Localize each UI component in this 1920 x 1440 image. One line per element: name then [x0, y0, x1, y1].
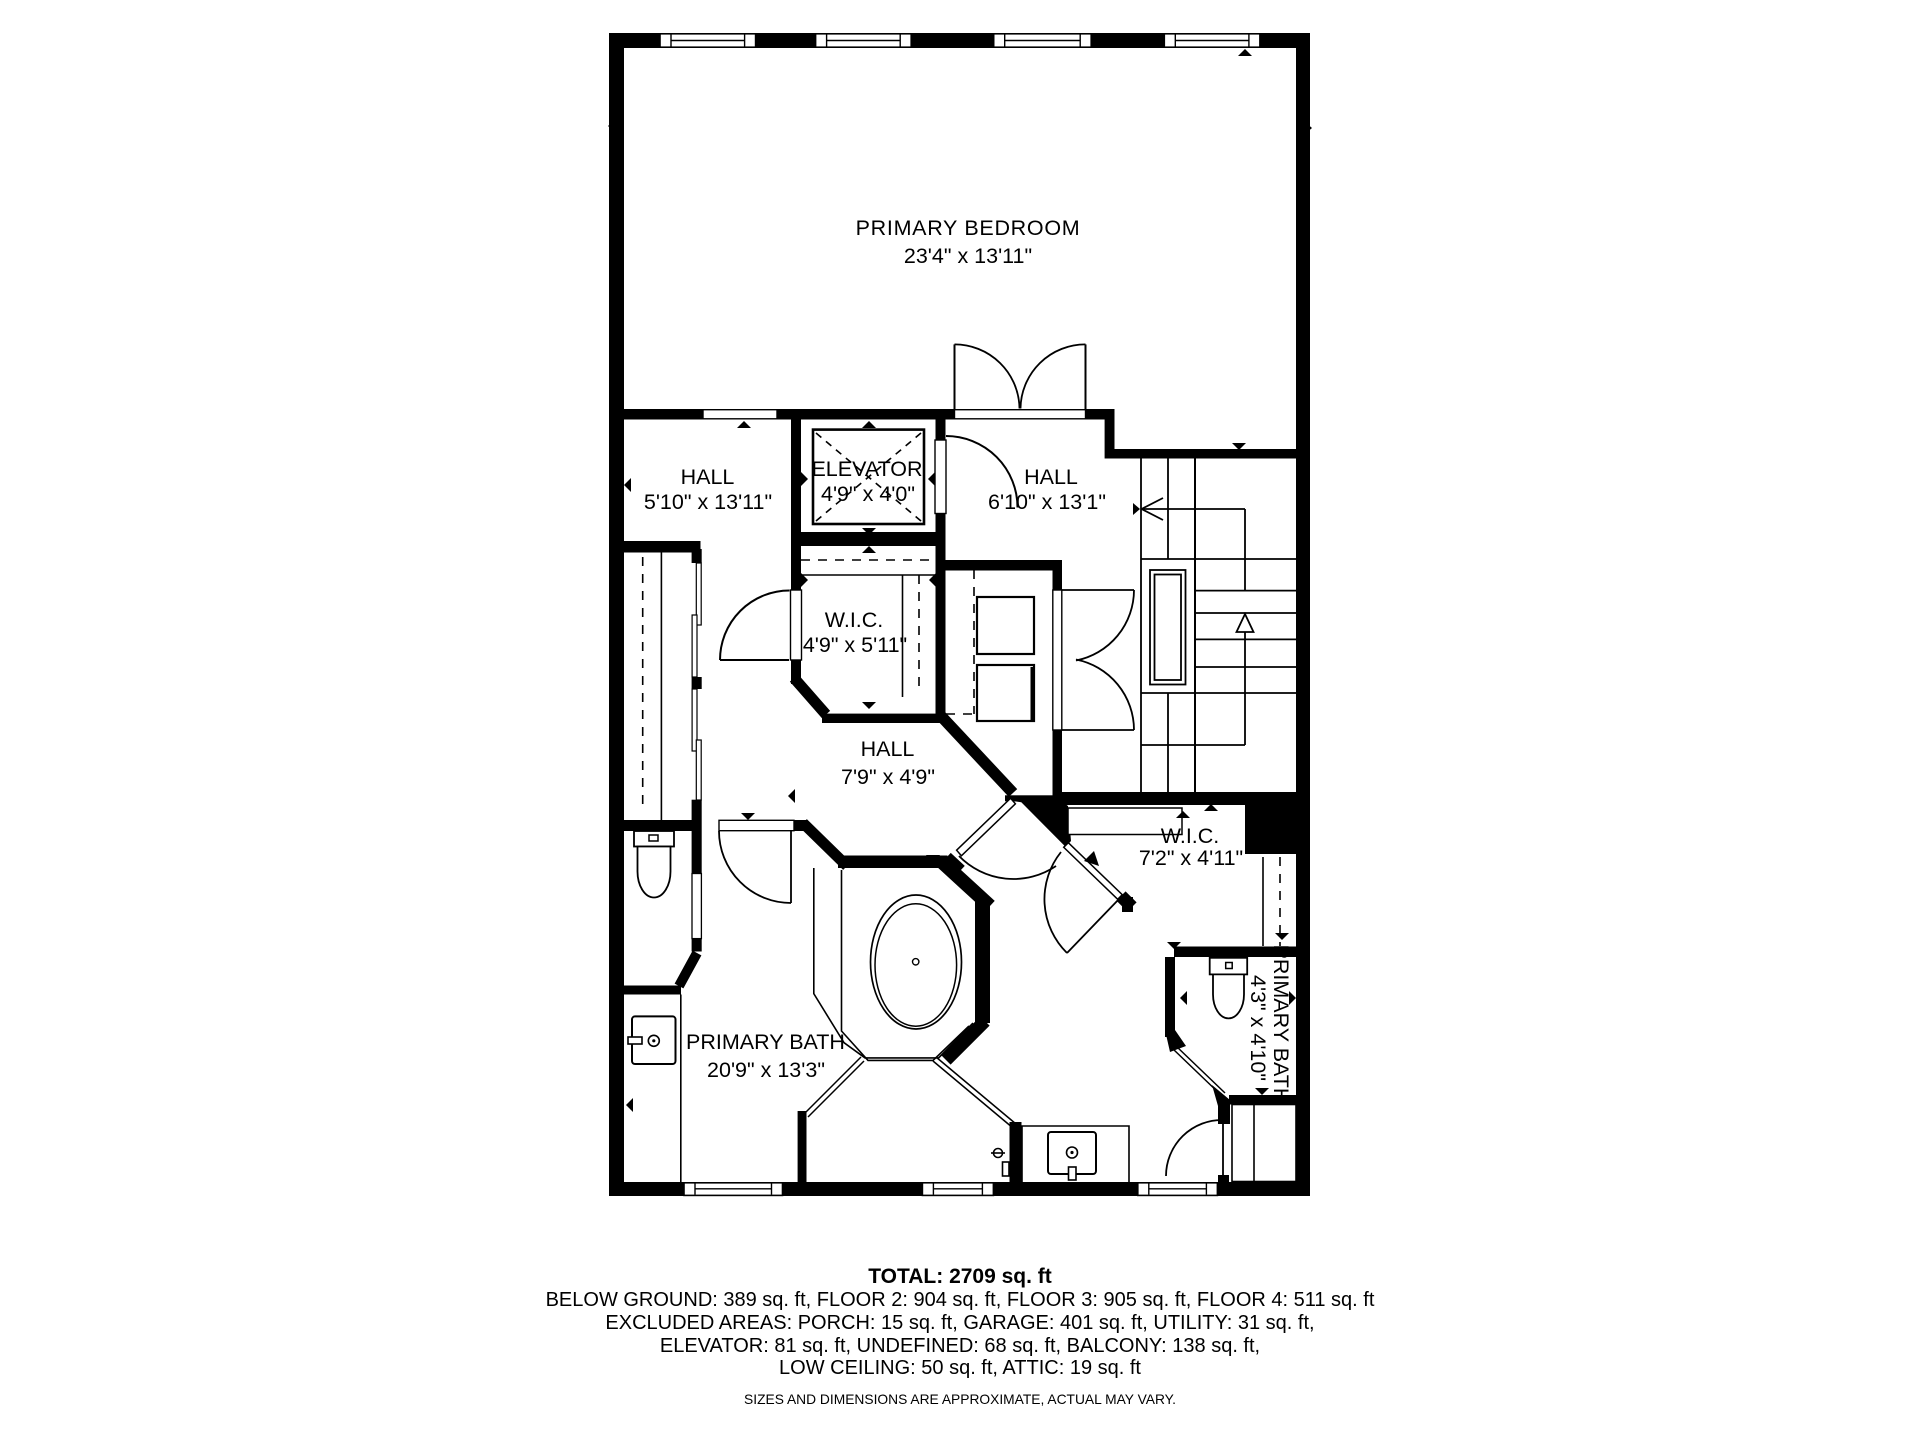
svg-text:HALL: HALL	[861, 737, 915, 761]
svg-text:LOW CEILING: 50 sq. ft, ATTIC:: LOW CEILING: 50 sq. ft, ATTIC: 19 sq. ft	[779, 1357, 1141, 1379]
svg-text:TOTAL: 2709 sq. ft: TOTAL: 2709 sq. ft	[868, 1265, 1052, 1288]
svg-text:6'10" x 13'1": 6'10" x 13'1"	[988, 490, 1106, 514]
svg-text:EXCLUDED AREAS: PORCH: 15 sq.: EXCLUDED AREAS: PORCH: 15 sq. ft, GARAGE…	[605, 1312, 1314, 1334]
svg-text:W.I.C.: W.I.C.	[1161, 824, 1220, 848]
svg-text:W.I.C.: W.I.C.	[825, 608, 884, 632]
svg-text:PRIMARY BATH: PRIMARY BATH	[686, 1030, 845, 1054]
svg-text:4'3" x 4'10": 4'3" x 4'10"	[1246, 975, 1270, 1081]
svg-text:PRIMARY BATH: PRIMARY BATH	[1269, 945, 1293, 1104]
svg-text:5'10" x 13'11": 5'10" x 13'11"	[644, 490, 772, 514]
svg-text:ELEVATOR: 81 sq. ft, UNDEFINED: ELEVATOR: 81 sq. ft, UNDEFINED: 68 sq. f…	[660, 1335, 1260, 1357]
svg-text:20'9" x 13'3": 20'9" x 13'3"	[707, 1058, 825, 1082]
svg-text:7'9" x 4'9": 7'9" x 4'9"	[841, 765, 935, 789]
svg-text:HALL: HALL	[681, 465, 735, 489]
svg-text:ELEVATOR: ELEVATOR	[811, 457, 922, 481]
svg-text:SIZES AND DIMENSIONS ARE APPRO: SIZES AND DIMENSIONS ARE APPROXIMATE, AC…	[744, 1392, 1176, 1407]
svg-text:HALL: HALL	[1024, 465, 1078, 489]
svg-text:4'9" x 4'0": 4'9" x 4'0"	[821, 482, 915, 506]
svg-text:23'4" x 13'11": 23'4" x 13'11"	[904, 244, 1032, 268]
svg-text:BELOW GROUND: 389 sq. ft, FLOO: BELOW GROUND: 389 sq. ft, FLOOR 2: 904 s…	[546, 1289, 1375, 1311]
svg-text:7'2" x 4'11": 7'2" x 4'11"	[1139, 846, 1243, 870]
svg-text:PRIMARY BEDROOM: PRIMARY BEDROOM	[856, 216, 1081, 240]
svg-text:4'9" x 5'11": 4'9" x 5'11"	[803, 633, 907, 657]
